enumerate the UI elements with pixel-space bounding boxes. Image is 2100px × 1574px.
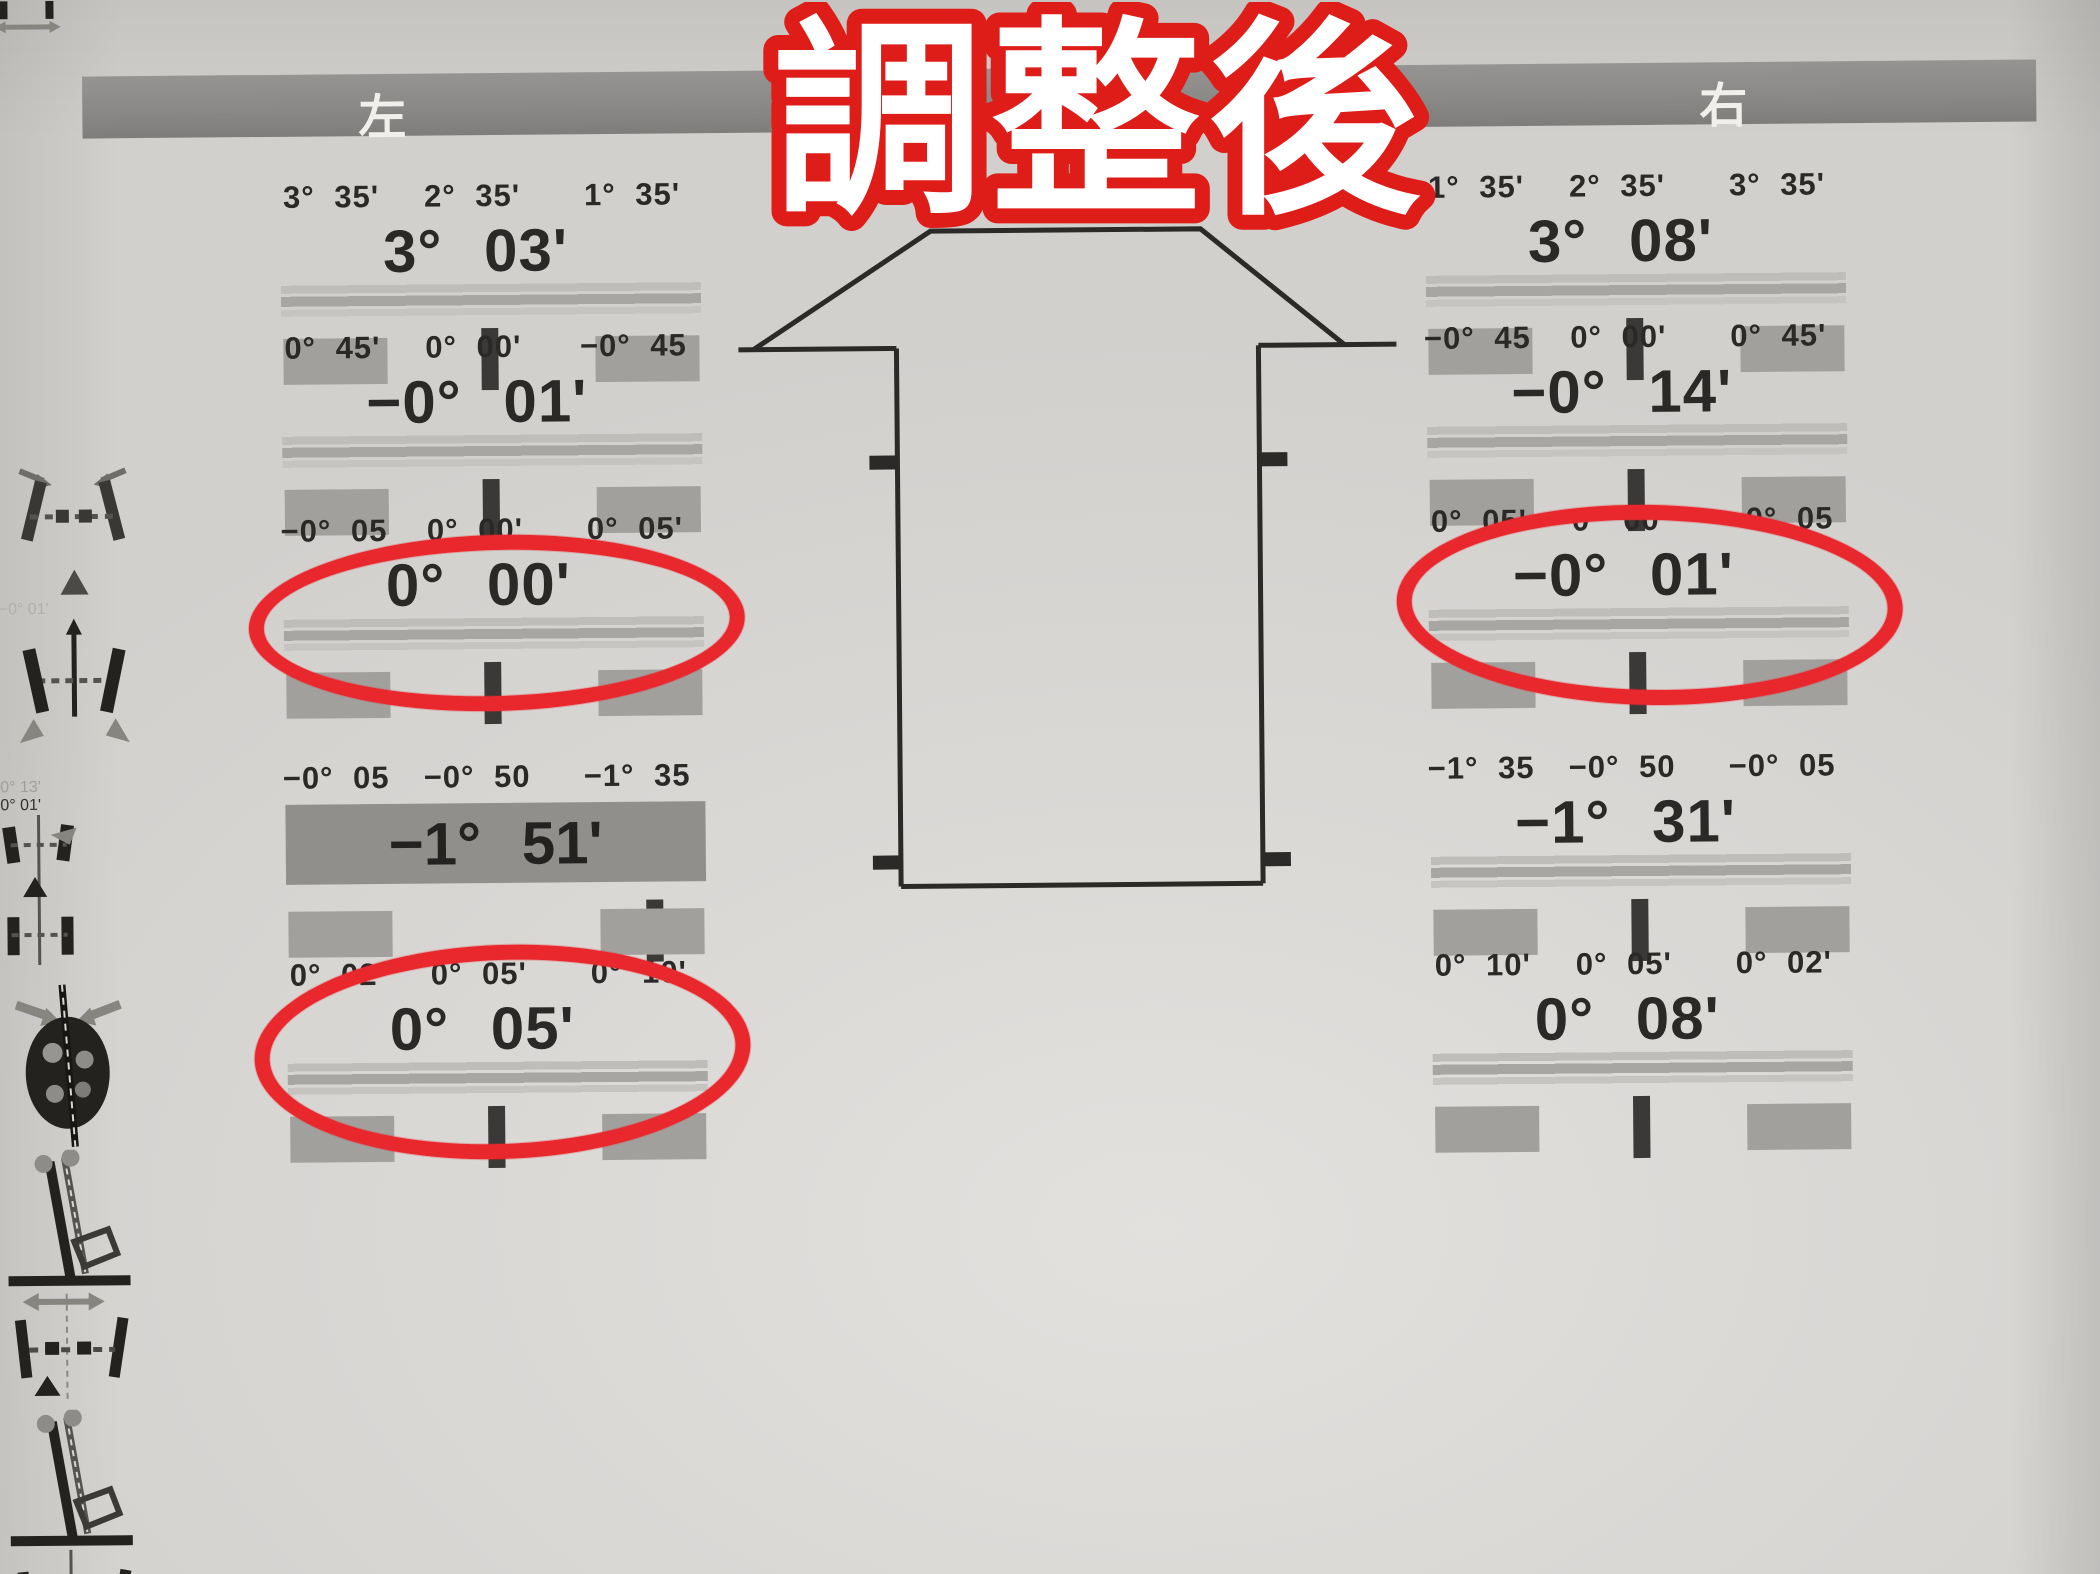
front-right-wheel bbox=[1269, 362, 1399, 545]
front-toe-icon bbox=[5, 1289, 141, 1410]
scale-label: −0° 50 bbox=[1537, 748, 1707, 785]
measured-value: −1° 31' bbox=[1420, 785, 1831, 858]
title-annotation: 調整後 bbox=[690, 2, 1510, 247]
scale-label: −0° 45 bbox=[548, 327, 718, 364]
gauge-right-rear-toe: 0° 10' 0° 05' 0° 02' 0° 08' bbox=[1432, 944, 1854, 1166]
measured-value: 0° 08' bbox=[1422, 982, 1833, 1055]
scale-label: 0° 05' bbox=[1539, 945, 1709, 982]
rear-camber-icon bbox=[6, 1409, 142, 1550]
front-left-wheel bbox=[744, 367, 874, 550]
scale-label: 0° 02' bbox=[1699, 944, 1869, 981]
gauge-right-rear-camber: −1° 35 −0° 50 −0° 05 −1° 31' bbox=[1430, 747, 1852, 969]
scale-label: −0° 05 bbox=[1697, 747, 1867, 784]
gauge-indicator bbox=[1433, 1094, 1854, 1162]
measured-value: −0° 14' bbox=[1417, 355, 1828, 428]
scale-label: 2° 35' bbox=[387, 177, 557, 214]
measured-value: 3° 03' bbox=[270, 214, 681, 287]
rear-toe-icon bbox=[7, 1549, 143, 1574]
scale-label: −1° 35 bbox=[552, 757, 722, 794]
measured-value: −1° 51' bbox=[388, 808, 603, 879]
title-text: 調整後 bbox=[773, 4, 1427, 239]
rear-left-wheel bbox=[748, 749, 882, 980]
range-block bbox=[288, 911, 392, 958]
rear-right-wheel bbox=[1270, 744, 1404, 975]
scale-label: 0° 00' bbox=[388, 328, 558, 365]
scale-label: 3° 35' bbox=[1692, 166, 1862, 203]
value-pointer bbox=[1633, 1096, 1651, 1158]
alignment-report-photo: 左 右 −0° 01' 0° 13' bbox=[0, 0, 2100, 1574]
measured-value: −0° 01' bbox=[272, 365, 683, 438]
scale-label: 0° 00' bbox=[1533, 318, 1703, 355]
scale-label: −0° 50 bbox=[392, 758, 562, 795]
scale-label: 2° 35' bbox=[1532, 167, 1702, 204]
range-block bbox=[1747, 1103, 1851, 1150]
scale-label: 0° 45' bbox=[1693, 317, 1863, 354]
range-block bbox=[600, 908, 704, 955]
out-of-range-band: −1° 51' bbox=[285, 801, 706, 885]
range-block bbox=[1435, 1106, 1539, 1153]
